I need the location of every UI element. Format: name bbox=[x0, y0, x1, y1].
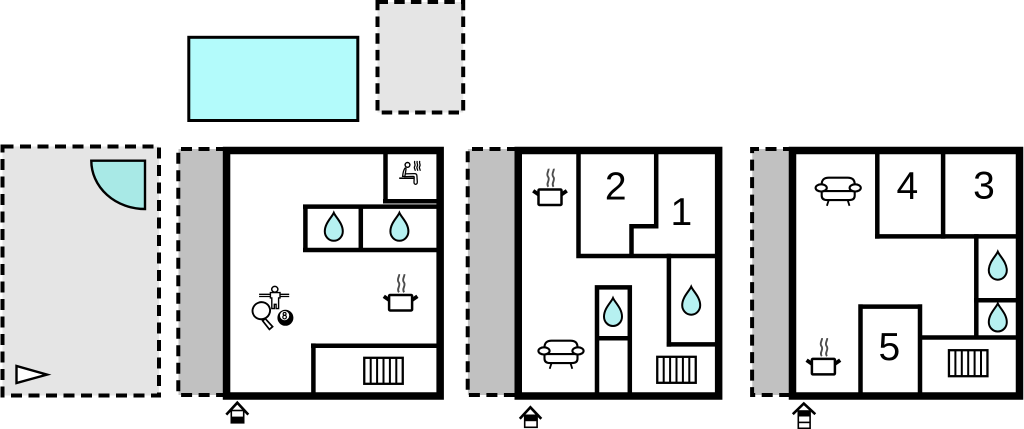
svg-text:1: 1 bbox=[670, 191, 692, 234]
svg-text:2: 2 bbox=[605, 165, 627, 208]
svg-text:4: 4 bbox=[897, 165, 919, 208]
svg-text:5: 5 bbox=[879, 326, 901, 369]
svg-text:3: 3 bbox=[973, 164, 995, 207]
